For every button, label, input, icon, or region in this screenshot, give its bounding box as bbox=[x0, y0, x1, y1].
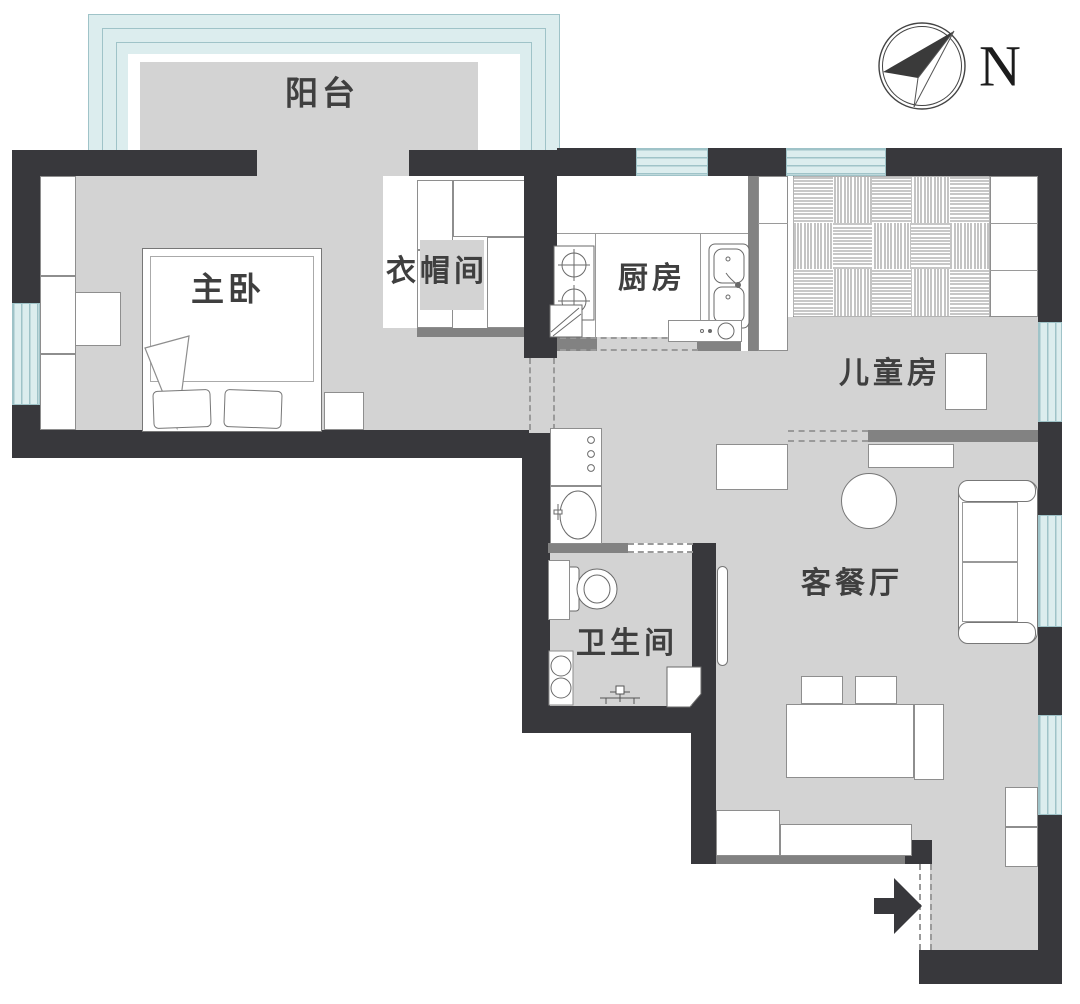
wall-top-kitchen-left bbox=[557, 148, 636, 176]
wall-hall-left bbox=[522, 433, 550, 706]
kids-cabinet-divider bbox=[990, 223, 1038, 224]
bathroom-door-leaf bbox=[717, 566, 728, 666]
wall-right-seg4 bbox=[1038, 815, 1062, 984]
partition-kids-bottom bbox=[868, 430, 1038, 442]
partition-bathroom-top bbox=[548, 543, 628, 553]
kids-desk bbox=[945, 353, 987, 410]
cloakroom-shelf bbox=[453, 180, 529, 237]
entry-floor bbox=[930, 857, 1040, 952]
shower-icon bbox=[666, 666, 702, 708]
dining-table-icon bbox=[786, 704, 914, 778]
sofa-cushion bbox=[962, 562, 1018, 622]
dining-bench bbox=[780, 824, 912, 856]
wall-bedroom-bottom bbox=[12, 430, 529, 458]
opening-bathroom bbox=[628, 543, 693, 553]
kids-closet-divider bbox=[758, 223, 788, 224]
window-right-2 bbox=[1038, 515, 1062, 627]
shoe-cabinet bbox=[1005, 827, 1038, 867]
room-label-kitchen: 厨房 bbox=[618, 264, 686, 294]
wall-top-right bbox=[886, 148, 1062, 176]
washing-machine-buttons bbox=[584, 434, 598, 480]
bathroom-side-fixture bbox=[548, 650, 574, 706]
dining-chair bbox=[855, 676, 897, 704]
opening-kids-room bbox=[788, 430, 868, 442]
room-label-cloakroom: 衣帽间 bbox=[386, 257, 488, 287]
basin-icon bbox=[552, 488, 600, 542]
side-cabinet bbox=[868, 444, 954, 468]
sofa-cushion bbox=[962, 502, 1018, 562]
opening-bedroom-hall bbox=[529, 358, 555, 430]
cloakroom-bottom-bar bbox=[417, 328, 529, 337]
kitchen-appliance-knob bbox=[690, 322, 738, 340]
kids-closet-column bbox=[758, 176, 788, 351]
sofa-armrest bbox=[958, 480, 1036, 502]
room-label-bathroom: 卫生间 bbox=[576, 629, 678, 659]
sofa-armrest bbox=[958, 622, 1036, 644]
kitchen-counter-line bbox=[557, 233, 748, 234]
room-label-master-bedroom: 主卧 bbox=[191, 273, 265, 306]
cloakroom-shelf bbox=[487, 237, 529, 328]
kids-cabinet-divider bbox=[990, 270, 1038, 271]
fridge-icon bbox=[549, 304, 583, 338]
sink-icon bbox=[708, 243, 750, 329]
pillow-icon bbox=[223, 389, 282, 429]
wall-top-mid bbox=[708, 148, 786, 176]
wall-bathroom-bottom bbox=[522, 706, 693, 733]
kids-side-cabinet bbox=[990, 176, 1038, 317]
wall-top-bedroom bbox=[12, 150, 257, 176]
room-label-kids-room: 儿童房 bbox=[839, 359, 941, 389]
window-right-1 bbox=[1038, 322, 1062, 422]
bathroom-shelf bbox=[548, 560, 570, 620]
nightstand bbox=[324, 392, 364, 430]
entry-arrow-icon bbox=[872, 874, 924, 938]
dining-bench bbox=[716, 810, 780, 856]
bedside-cabinet bbox=[75, 292, 121, 346]
wall-right-seg3 bbox=[1038, 627, 1062, 715]
toilet-icon bbox=[564, 563, 620, 615]
wardrobe bbox=[40, 354, 76, 430]
floor-drain-icon bbox=[596, 684, 644, 706]
shoe-cabinet bbox=[1005, 787, 1038, 827]
tv-cabinet bbox=[716, 444, 788, 490]
wall-right-seg1 bbox=[1038, 150, 1062, 322]
window-kids-top bbox=[786, 148, 886, 176]
room-label-living-dining: 客餐厅 bbox=[801, 569, 903, 599]
window-kitchen-top bbox=[636, 148, 708, 176]
wall-right-seg2 bbox=[1038, 422, 1062, 515]
wall-left-upper bbox=[12, 150, 40, 303]
compass-north-label: N bbox=[979, 33, 1021, 100]
window-right-3 bbox=[1038, 715, 1062, 815]
round-table-icon bbox=[841, 473, 897, 529]
compass-icon bbox=[876, 20, 968, 112]
wardrobe bbox=[40, 176, 76, 276]
pillow-icon bbox=[152, 389, 211, 429]
woven-bed-platform-icon bbox=[793, 176, 990, 317]
wall-lower-left-vertical bbox=[691, 733, 716, 864]
wardrobe bbox=[40, 276, 76, 354]
room-label-balcony: 阳台 bbox=[285, 77, 359, 110]
dining-chair bbox=[914, 704, 944, 780]
floor-plan: N 阳台 主卧 衣帽间 厨房 儿童房 客餐厅 卫生间 bbox=[0, 0, 1080, 1004]
window-bedroom-left bbox=[12, 303, 40, 405]
balcony-opening-floor bbox=[257, 150, 409, 178]
kitchen-counter-line bbox=[595, 234, 596, 337]
dining-chair bbox=[801, 676, 843, 704]
